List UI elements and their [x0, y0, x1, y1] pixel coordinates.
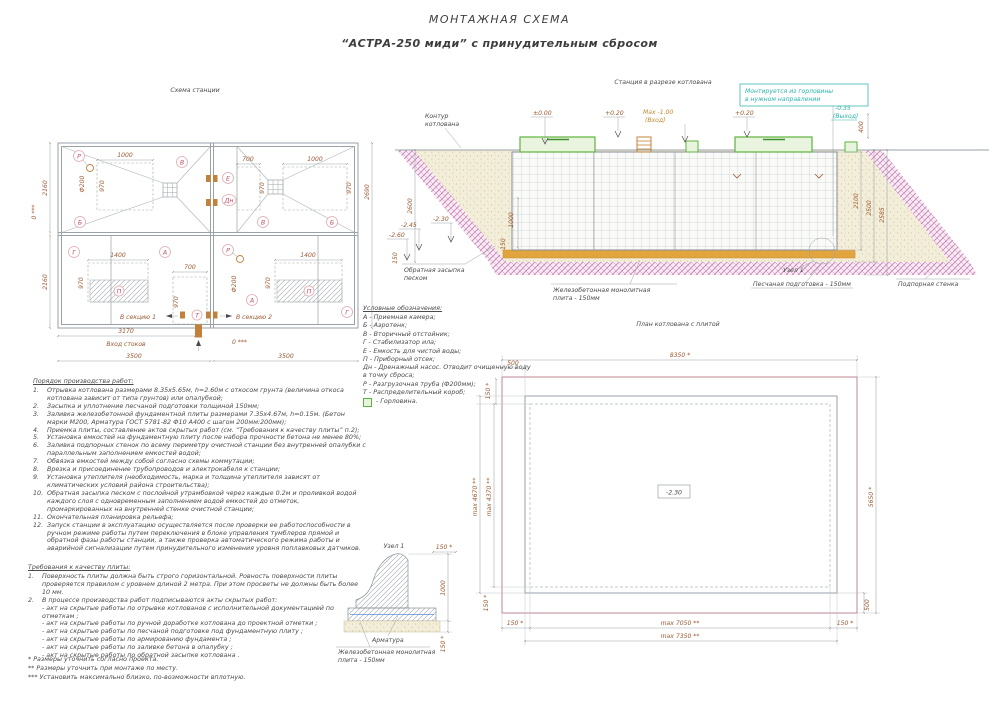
svg-text:плита - 150мм: плита - 150мм — [338, 657, 385, 664]
svg-text:Контур: Контур — [425, 113, 448, 120]
svg-text:песком: песком — [404, 275, 428, 282]
svg-text:Ф200: Ф200 — [231, 275, 238, 292]
svg-text:1000: 1000 — [440, 580, 447, 596]
svg-text:Арматура: Арматура — [371, 637, 404, 644]
svg-text:Г: Г — [72, 249, 76, 256]
svg-text:+0.20: +0.20 — [735, 110, 754, 117]
svg-text:плита - 150мм: плита - 150мм — [553, 295, 600, 302]
work-order-title: Порядок производства работ: — [33, 378, 366, 386]
act-item: - акт на скрытые работы по заливке бетон… — [42, 644, 368, 652]
work-order-item: 2.Засыпка и уплотнение песчаной подготов… — [33, 403, 366, 411]
svg-text:150 *: 150 * — [837, 620, 854, 627]
svg-text:+0.20: +0.20 — [605, 110, 624, 117]
svg-text:2690: 2690 — [364, 184, 371, 200]
svg-text:±0.00: ±0.00 — [533, 110, 552, 117]
svg-text:А: А — [249, 297, 254, 304]
svg-text:-2.60: -2.60 — [389, 232, 405, 239]
svg-text:П: П — [307, 288, 312, 295]
svg-text:1000: 1000 — [508, 212, 515, 228]
footnote: ** Размеры уточнить при монтаже по месту… — [28, 665, 245, 673]
svg-text:котлована: котлована — [425, 121, 459, 128]
svg-text:2160: 2160 — [42, 180, 49, 196]
footnote: * Размеры уточнить согласно проекта. — [28, 656, 245, 664]
svg-text:Р: Р — [77, 153, 81, 160]
svg-text:970: 970 — [346, 182, 353, 194]
svg-text:Ф200: Ф200 — [79, 175, 86, 192]
work-order-item: 1.Отрывка котлована размерами 8.35х5.65м… — [33, 387, 366, 403]
svg-text:Дн: Дн — [223, 197, 233, 204]
svg-text:1400: 1400 — [300, 252, 316, 259]
svg-text:150 *: 150 * — [507, 620, 524, 627]
requirements-block: Требования к качеству плиты: 1.Поверхнос… — [28, 564, 368, 660]
svg-text:0 ***: 0 *** — [31, 205, 38, 220]
svg-text:в нужном направлении: в нужном направлении — [745, 96, 820, 103]
svg-text:max 4370 **: max 4370 ** — [486, 478, 493, 517]
svg-text:Монтируется из горловины: Монтируется из горловины — [745, 88, 833, 95]
inlet-note: Вход стоков — [106, 341, 146, 348]
svg-text:2600: 2600 — [407, 198, 414, 214]
svg-text:500: 500 — [507, 360, 519, 367]
svg-text:Песчаная подготовка - 150мм: Песчаная подготовка - 150мм — [753, 281, 851, 288]
act-item: - акт на скрытые работы по отрывке котло… — [42, 605, 368, 621]
station-plan-drawing: Схема станции — [20, 80, 392, 380]
pit-plan-drawing: План котлована с плитой -2.30 8350 * 500… — [440, 315, 999, 660]
sheet-title: МОНТАЖНАЯ СХЕМА — [0, 13, 999, 26]
work-order-item: 11.Окончательная планировка рельефа; — [33, 514, 366, 522]
svg-text:Подпорная стенка: Подпорная стенка — [898, 281, 959, 288]
svg-text:3170: 3170 — [118, 328, 134, 335]
svg-text:700: 700 — [242, 156, 254, 163]
svg-text:8350 *: 8350 * — [670, 352, 691, 359]
svg-text:max 7050 **: max 7050 ** — [661, 620, 700, 627]
work-order-item: 10.Обратная засыпка песком с послойной у… — [33, 490, 366, 514]
requirement-item: 1.Поверхность плиты должна быть строго г… — [28, 573, 368, 597]
svg-text:-0.35: -0.35 — [835, 105, 851, 112]
svg-text:max 7350 **: max 7350 ** — [661, 633, 700, 640]
svg-text:970: 970 — [78, 277, 85, 289]
svg-text:-2.30: -2.30 — [666, 490, 682, 497]
svg-text:150: 150 — [500, 238, 507, 250]
pit-plan-title: План котлована с плитой — [636, 321, 719, 328]
work-order-item: 6.Заливка подпорных стенок по всему пери… — [33, 442, 366, 458]
retaining-wall-profile — [344, 554, 440, 632]
svg-text:1000: 1000 — [117, 152, 133, 159]
svg-text:400: 400 — [858, 121, 865, 133]
svg-text:150 *: 150 * — [483, 595, 490, 612]
to-section1-note: В секцию 1 — [120, 314, 156, 321]
svg-text:В: В — [261, 219, 265, 226]
zero-note: 0 *** — [232, 339, 247, 346]
svg-text:А: А — [162, 249, 167, 256]
sheet-subtitle: “АСТРА-250 миди” с принудительным сбросо… — [0, 37, 999, 50]
svg-text:-2.30: -2.30 — [433, 216, 449, 223]
svg-text:Max -1.00: Max -1.00 — [643, 109, 673, 116]
footnotes: * Размеры уточнить согласно проекта. ** … — [28, 656, 245, 683]
svg-text:970: 970 — [259, 182, 266, 194]
svg-text:2500: 2500 — [866, 200, 873, 216]
svg-text:700: 700 — [184, 264, 196, 271]
svg-text:Е: Е — [226, 175, 230, 182]
work-order-item: 3.Заливка железобетонной фундаментной пл… — [33, 411, 366, 427]
svg-text:П: П — [117, 288, 122, 295]
requirement-item: 2.В процессе производства работ подписыв… — [28, 597, 368, 605]
legend-neck-label: - Горловина. — [376, 398, 418, 406]
svg-text:3500: 3500 — [126, 353, 142, 360]
svg-text:1400: 1400 — [110, 252, 126, 259]
node-dimensions: 1000 150 * — [408, 554, 452, 652]
svg-text:Железобетонная монолитная: Железобетонная монолитная — [552, 286, 651, 294]
station-body — [512, 152, 837, 250]
svg-text:(Выход): (Выход) — [833, 113, 858, 120]
pit-elevation-box: -2.30 — [658, 485, 690, 498]
requirements-title: Требования к качеству плиты: — [28, 564, 368, 572]
neck-covers — [520, 137, 857, 152]
legend-title: Условные обозначения: — [363, 305, 535, 313]
neck-icon — [363, 398, 372, 407]
work-order-item: 7.Обвязка емкостей между собой согласно … — [33, 458, 366, 466]
drawing-sheet: МОНТАЖНАЯ СХЕМА “АСТРА-250 миди” с прину… — [0, 0, 999, 707]
svg-text:1000: 1000 — [307, 156, 323, 163]
svg-text:Б: Б — [330, 219, 334, 226]
contour-label: Контур котлована — [425, 113, 461, 148]
svg-text:970: 970 — [99, 180, 106, 192]
svg-text:Узел 1: Узел 1 — [783, 267, 804, 274]
svg-text:Р: Р — [226, 247, 230, 254]
node-detail-drawing: Узел 1 150 * 1000 150 * Арматура Железоб… — [330, 538, 475, 668]
hidden-works-acts: - акт на скрытые работы по отрывке котло… — [28, 605, 368, 660]
svg-text:500: 500 — [864, 599, 871, 611]
svg-text:-2.45: -2.45 — [401, 222, 417, 229]
svg-text:2585: 2585 — [879, 207, 886, 223]
svg-text:2160: 2160 — [42, 274, 49, 290]
footnote: *** Установить максимально близко, по-во… — [28, 674, 245, 682]
svg-text:Обратная засыпка: Обратная засыпка — [404, 266, 465, 274]
svg-text:5650 *: 5650 * — [868, 487, 875, 508]
svg-text:150 *: 150 * — [436, 544, 453, 551]
svg-text:В: В — [180, 159, 184, 166]
svg-text:150: 150 — [392, 252, 399, 264]
svg-text:(Вход): (Вход) — [645, 117, 665, 124]
svg-text:970: 970 — [265, 277, 272, 289]
svg-text:150 *: 150 * — [440, 636, 447, 653]
svg-text:150 *: 150 * — [485, 383, 492, 400]
work-order-block: Порядок производства работ: 1.Отрывка ко… — [33, 378, 366, 553]
section-view-drawing: Станция в разрезе котлована — [385, 70, 999, 318]
svg-text:Железобетонная монолитная: Железобетонная монолитная — [337, 648, 436, 656]
work-order-item: 8.Врезка и присоединение трубопроводов и… — [33, 466, 366, 474]
work-order-item: 12.Запуск станции в эксплуатацию осущест… — [33, 522, 366, 554]
svg-text:970: 970 — [173, 296, 180, 308]
work-order-item: 9.Установка утеплителя (необходимость, м… — [33, 474, 366, 490]
station-plan-title: Схема станции — [170, 87, 219, 94]
svg-text:max 4670 **: max 4670 ** — [472, 478, 479, 517]
section-title: Станция в разрезе котлована — [614, 79, 711, 86]
svg-text:2100: 2100 — [853, 193, 860, 209]
svg-text:Г: Г — [345, 309, 349, 316]
node-detail-title: Узел 1 — [384, 543, 405, 550]
svg-text:Б: Б — [78, 219, 82, 226]
svg-text:3500: 3500 — [278, 353, 294, 360]
to-section2-note: В секцию 2 — [236, 314, 272, 321]
